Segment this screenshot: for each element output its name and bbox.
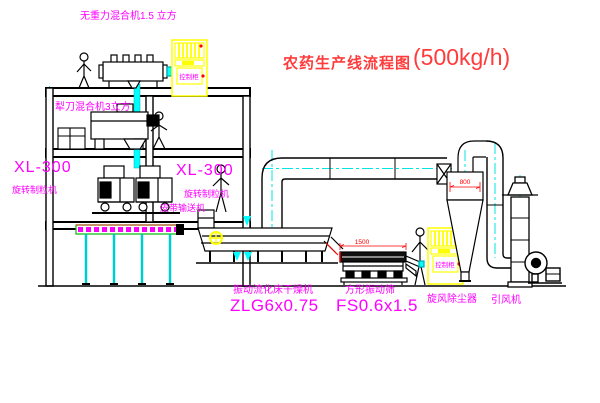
fluid-bed-dryer bbox=[198, 210, 343, 262]
worker-figure bbox=[77, 53, 91, 88]
svg-text:控制柜: 控制柜 bbox=[179, 72, 199, 81]
label-top-mixer: 无重力混合机1.5 立方 bbox=[80, 12, 177, 22]
granulator-1 bbox=[98, 166, 134, 211]
title-capacity: (500kg/h) bbox=[413, 44, 510, 71]
label-belt-conveyor: 皮带输送机 bbox=[160, 204, 205, 213]
belt-conveyor bbox=[76, 224, 184, 284]
label-cyclone: 旋风除尘器 bbox=[427, 295, 477, 305]
label-granulator2-model: XL-300 bbox=[176, 163, 234, 179]
vibrating-screen bbox=[340, 252, 424, 285]
title-text: 农药生产线流程图 bbox=[283, 52, 411, 73]
label-dryer-model: ZLG6x0.75 bbox=[230, 297, 319, 314]
svg-text:1500: 1500 bbox=[355, 239, 370, 246]
label-granulator1-name: 旋转制粒机 bbox=[12, 186, 57, 195]
label-dryer-name: 振动流化床干燥机 bbox=[233, 286, 313, 296]
label-fan: 引风机 bbox=[491, 296, 521, 306]
ground-line bbox=[38, 263, 566, 286]
label-floor2-mixer: 犁刀混合机3立方 bbox=[55, 103, 131, 113]
gravity-free-mixer bbox=[99, 55, 176, 88]
label-screen-name: 方形振动筛 bbox=[345, 286, 395, 296]
label-granulator1-model: XL-300 bbox=[14, 160, 72, 176]
label-granulator2-name: 旋转制粒机 bbox=[184, 190, 229, 199]
process-flow-diagram-page: 控制柜 控制柜 bbox=[0, 0, 600, 403]
dimension-screen: 1500 bbox=[340, 239, 406, 250]
svg-text:800: 800 bbox=[460, 179, 471, 186]
induced-draft-fan bbox=[525, 252, 562, 283]
floor2-small-machine bbox=[58, 128, 85, 149]
diagram-title: 农药生产线流程图 (500kg/h) bbox=[283, 44, 510, 73]
svg-text:控制柜: 控制柜 bbox=[435, 260, 455, 269]
control-cabinet-1: 控制柜 bbox=[172, 40, 207, 96]
worker-figure bbox=[412, 228, 428, 285]
label-screen-model: FS0.6x1.5 bbox=[336, 297, 418, 314]
